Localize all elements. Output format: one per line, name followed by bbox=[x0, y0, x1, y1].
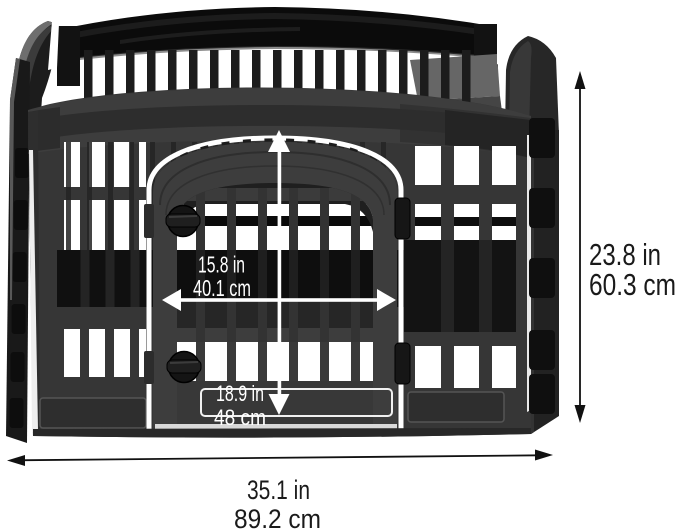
svg-text:15.8 in: 15.8 in bbox=[198, 252, 245, 278]
svg-text:40.1 cm: 40.1 cm bbox=[193, 275, 251, 301]
svg-text:35.1 in: 35.1 in bbox=[247, 475, 310, 505]
svg-text:89.2 cm: 89.2 cm bbox=[234, 504, 321, 530]
svg-text:18.9 in: 18.9 in bbox=[216, 381, 264, 406]
svg-text:48 cm: 48 cm bbox=[214, 405, 266, 430]
svg-text:60.3 cm: 60.3 cm bbox=[589, 267, 676, 302]
